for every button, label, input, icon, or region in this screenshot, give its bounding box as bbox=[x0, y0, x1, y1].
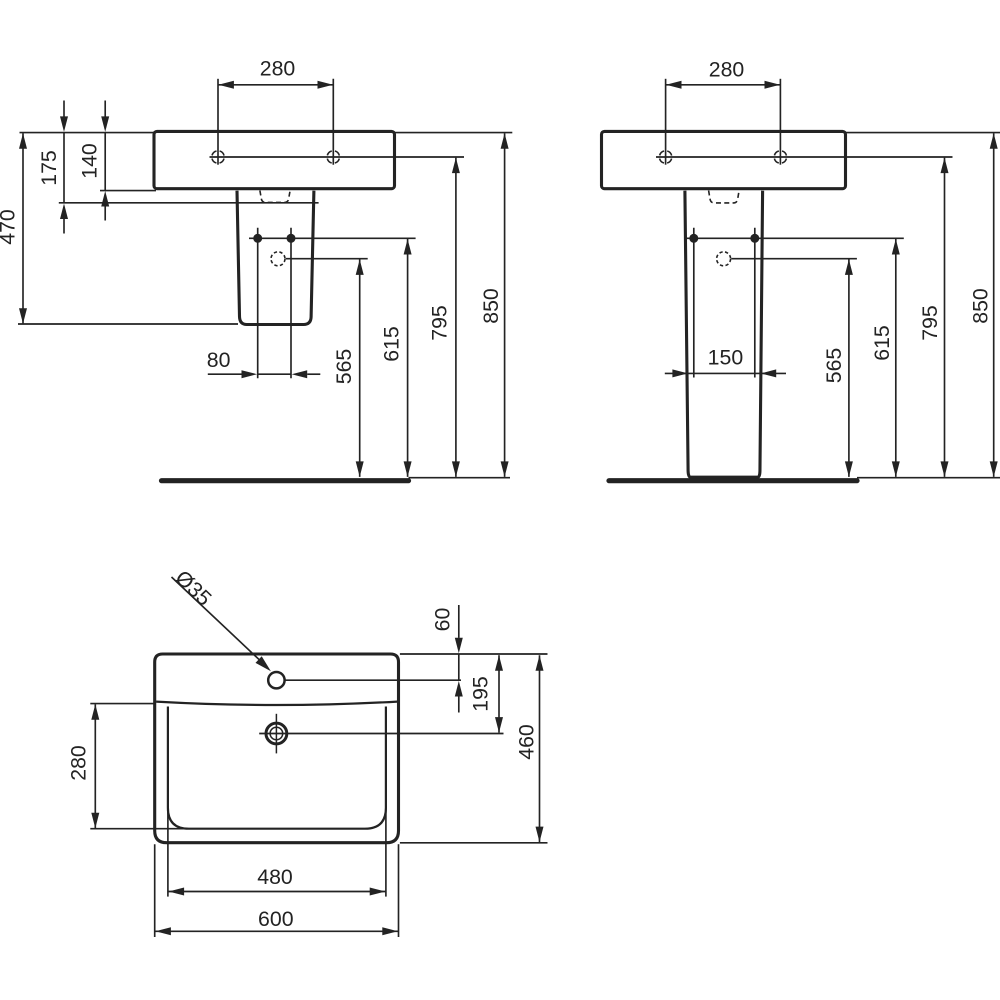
svg-text:615: 615 bbox=[380, 326, 404, 362]
svg-text:850: 850 bbox=[479, 288, 503, 324]
svg-text:565: 565 bbox=[332, 349, 356, 385]
svg-text:195: 195 bbox=[469, 676, 493, 712]
svg-text:615: 615 bbox=[870, 325, 894, 361]
svg-text:280: 280 bbox=[260, 57, 296, 81]
svg-text:60: 60 bbox=[431, 608, 455, 632]
svg-text:565: 565 bbox=[822, 348, 846, 384]
svg-text:480: 480 bbox=[257, 865, 293, 889]
svg-text:175: 175 bbox=[37, 150, 61, 186]
svg-text:795: 795 bbox=[918, 305, 942, 341]
svg-text:460: 460 bbox=[515, 724, 539, 760]
svg-text:280: 280 bbox=[709, 58, 745, 82]
svg-text:280: 280 bbox=[67, 745, 91, 781]
svg-text:850: 850 bbox=[968, 288, 992, 324]
svg-text:150: 150 bbox=[708, 346, 744, 370]
svg-text:795: 795 bbox=[428, 305, 452, 341]
svg-text:80: 80 bbox=[207, 348, 231, 372]
svg-text:Ø35: Ø35 bbox=[170, 566, 216, 611]
svg-text:470: 470 bbox=[0, 209, 20, 245]
svg-text:140: 140 bbox=[78, 143, 102, 179]
svg-text:600: 600 bbox=[258, 907, 294, 931]
